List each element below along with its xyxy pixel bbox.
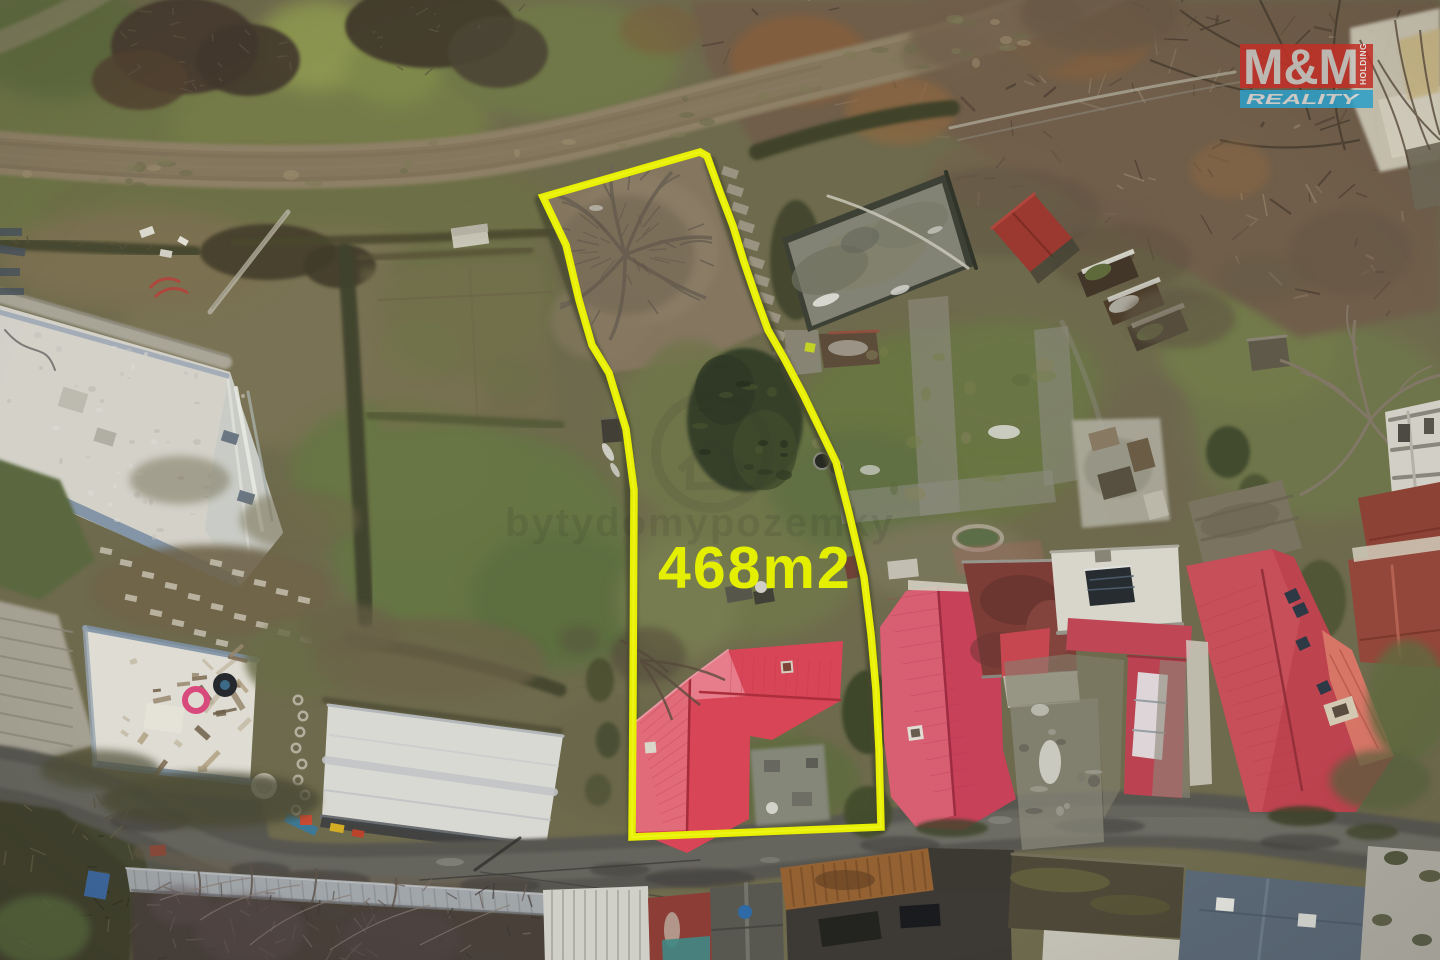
svg-text:M&M: M&M	[1243, 39, 1359, 95]
svg-text:HOLDING: HOLDING	[1358, 43, 1368, 85]
svg-text:REALITY: REALITY	[1246, 91, 1361, 108]
svg-text:468m2: 468m2	[658, 535, 852, 601]
